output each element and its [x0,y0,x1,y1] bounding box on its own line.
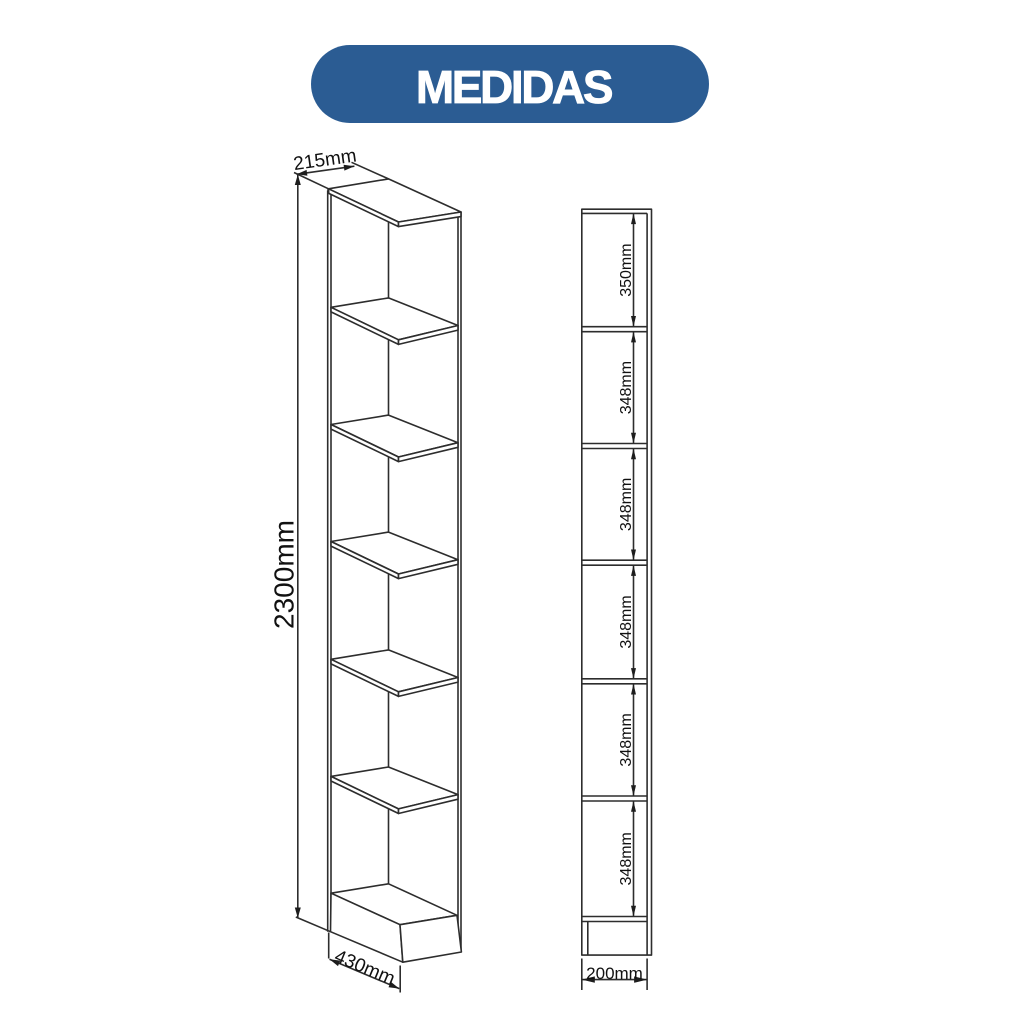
svg-text:215mm: 215mm [292,145,358,175]
svg-text:348mm: 348mm [618,361,635,414]
svg-text:348mm: 348mm [618,595,635,648]
svg-text:348mm: 348mm [618,832,635,885]
svg-text:348mm: 348mm [618,478,635,531]
svg-text:348mm: 348mm [618,713,635,766]
svg-text:2300mm: 2300mm [268,520,299,629]
svg-text:200mm: 200mm [586,964,643,983]
svg-text:350mm: 350mm [618,243,635,296]
